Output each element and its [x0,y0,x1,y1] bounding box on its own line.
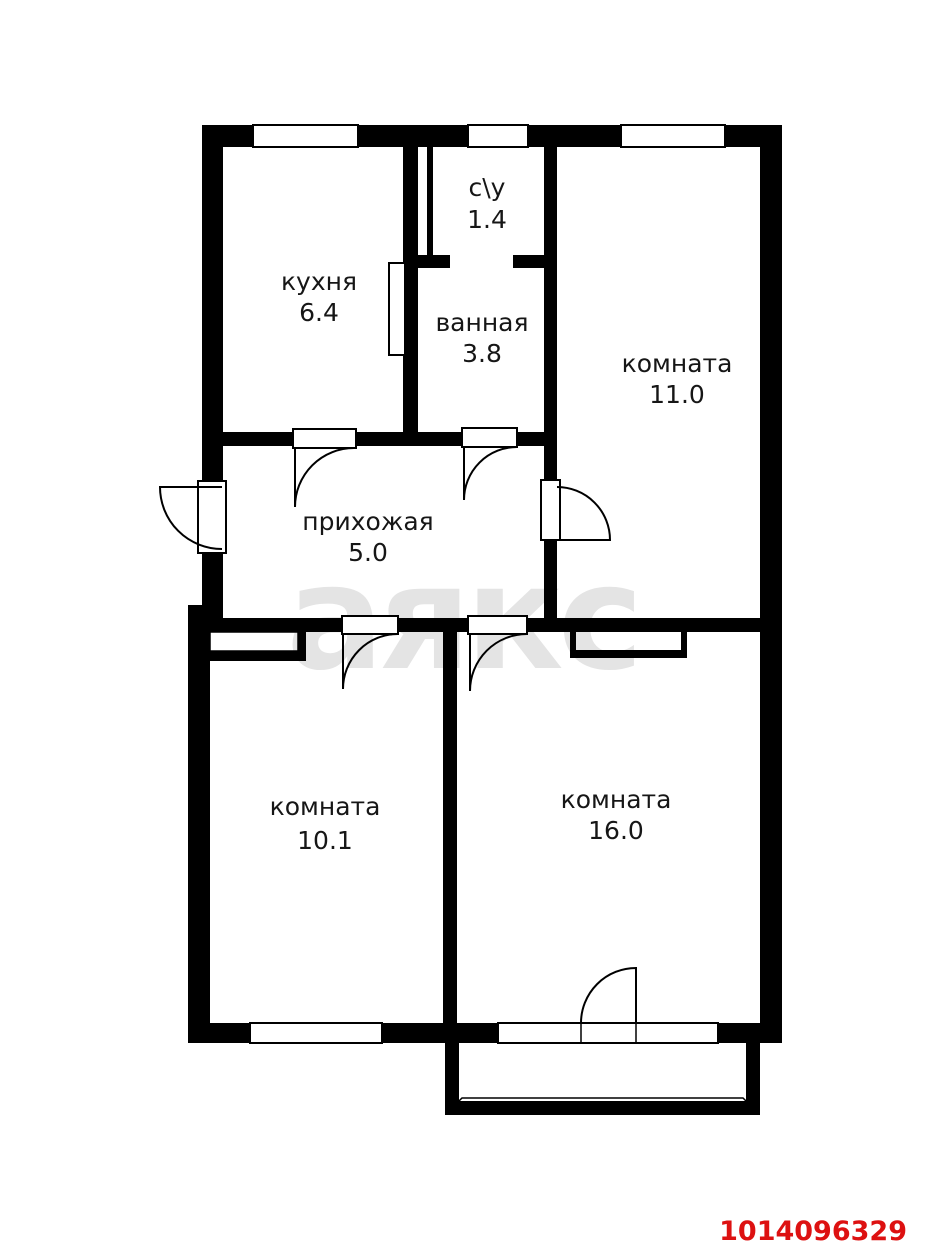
window-balcony-unit [498,1023,718,1043]
room10-name: комната [270,792,381,821]
room16-door-jamb [468,616,527,634]
wall-wc-bottom-right [513,255,544,268]
floor-plan-canvas: аякс [0,0,930,1246]
room11-door-jamb [541,480,560,540]
wall-room11-left-upper [544,147,557,480]
listing-id: 1014096329 [719,1216,907,1246]
wc-area: 1.4 [467,205,507,234]
wall-hallway-bottom-a [188,618,342,632]
niche16-bottom-wall [570,650,687,658]
balcony-wall-bottom [445,1101,760,1115]
room16-name: комната [561,785,672,814]
kitchen-door-jamb [293,429,356,448]
room16-area: 16.0 [588,816,644,845]
window-kitchen [253,125,358,147]
outer-wall-right [760,125,782,1043]
kitchen-area: 6.4 [299,298,339,327]
window-room11 [621,125,725,147]
wall-hallway-bottom-c [527,618,782,632]
wall-hallway-top-a [202,432,293,446]
hallway-area: 5.0 [348,538,388,567]
room10-area: 10.1 [297,826,353,855]
wall-hallway-top-b [356,432,462,446]
wc-name: с\у [469,173,506,202]
room10-door-jamb [342,616,398,634]
room11-area: 11.0 [649,380,705,409]
window-room10 [250,1023,382,1043]
kitchen-name: кухня [281,267,357,296]
wall-wc-bottom-left [403,255,450,268]
wall-room-divider [443,632,457,1023]
outer-wall-left-upper [202,125,223,483]
vent-shaft-box [389,263,405,355]
window-wc [468,125,528,147]
bathroom-name: ванная [435,308,528,337]
wall-duct-partition [427,147,433,257]
room11-name: комната [622,349,733,378]
bathroom-area: 3.8 [462,339,502,368]
outer-wall-left-lower [188,618,210,1043]
entrance-door-jamb [198,481,226,553]
bathroom-door-jamb [462,428,517,447]
hallway-name: прихожая [302,507,433,536]
floor-plan-page: аякс [0,0,930,1246]
niche10-bottom-wall [188,651,306,661]
wall-hallway-top-c [517,432,557,446]
wall-hallway-bottom-b [398,618,468,632]
